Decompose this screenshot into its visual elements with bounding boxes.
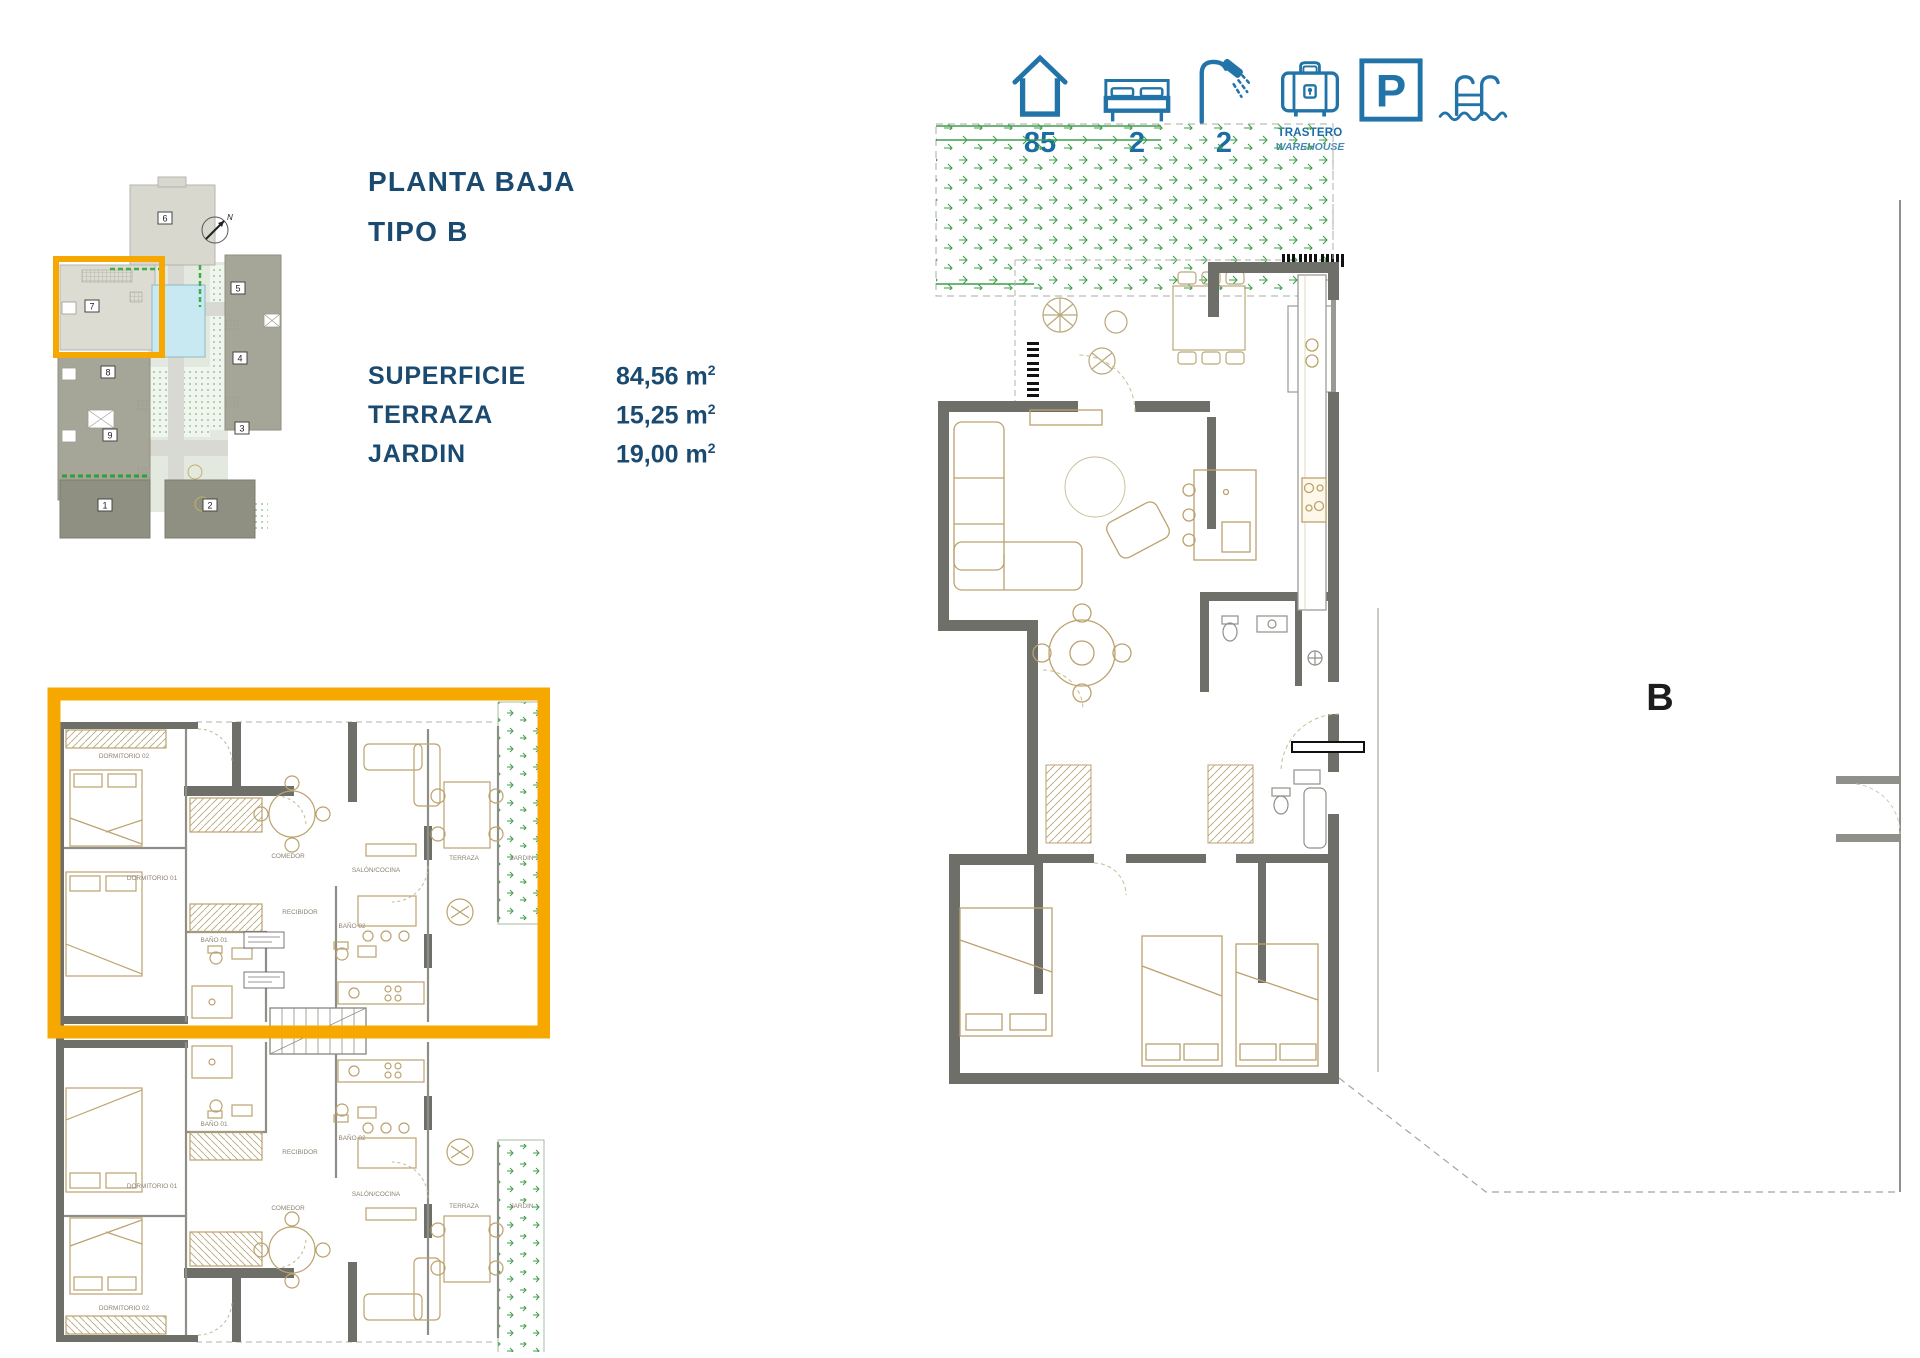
svg-text:1: 1 [102,501,107,511]
page-title: PLANTA BAJA [368,168,576,196]
room-label-dormitorio02: DORMITORIO 02 [99,753,150,760]
room-label-dormitorio01: DORMITORIO 01 [127,875,178,882]
room-label-bano01: BAÑO 01 [201,935,228,944]
spec-value: 19,00 m2 [616,440,716,469]
site-plan: N 6 7 5 4 8 3 9 1 2 [50,172,285,552]
site-building-6 [130,185,215,265]
compass-label: N [227,213,233,222]
room-label-bano02: BAÑO 02 [339,1133,366,1142]
room-label-bano01: BAÑO 01 [201,1119,228,1128]
svg-text:9: 9 [107,431,112,441]
surface-specs: SUPERFICIE 84,56 m2 TERRAZA 15,25 m2 JAR… [368,362,716,479]
bathroom2-fixtures [1272,770,1326,848]
sliding-door [1331,300,1336,392]
parking-letter: P [1376,66,1406,117]
bedroom-area [960,765,1326,1066]
svg-text:4: 4 [237,354,242,364]
spec-row-jardin: JARDIN 19,00 m2 [368,440,716,479]
walls [938,262,1339,1084]
room-label-dormitorio01: DORMITORIO 01 [127,1183,178,1190]
room-label-recibidor: RECIBIDOR [282,909,318,916]
svg-text:6: 6 [162,214,167,224]
room-label-jardin: JARDIN [510,855,533,862]
room-label-salon: SALÓN/COCINA [352,865,401,874]
living-room-furniture [954,410,1172,590]
spec-row-superficie: SUPERFICIE 84,56 m2 [368,362,716,401]
room-label-comedor: COMEDOR [271,853,305,860]
plot-boundary [1339,200,1900,1192]
spec-label: JARDIN [368,440,616,469]
apartment-tipo-b-upper [56,702,544,1028]
svg-text:7: 7 [89,302,94,312]
spec-label: TERRAZA [368,401,616,430]
room-label-terraza: TERRAZA [449,855,480,862]
svg-text:3: 3 [239,424,244,434]
page-subtitle: TIPO B [368,218,576,246]
room-label-salon: SALÓN/COCINA [352,1189,401,1198]
svg-text:2: 2 [207,501,212,511]
unit-letter-label: B [1646,677,1673,719]
entry-tag [244,932,284,988]
ground-floor-plan-left: DORMITORIO 02 DORMITORIO 01 BAÑO 01 COME… [36,686,550,1352]
room-label-bano02: BAÑO 02 [339,921,366,930]
svg-text:8: 8 [105,368,110,378]
brochure-page: { "header": { "title_line1": "PLANTA BAJ… [0,0,1920,1358]
room-label-comedor: COMEDOR [271,1205,305,1212]
structural-beam [1292,742,1364,752]
spec-value: 84,56 m2 [616,362,716,391]
detail-floor-plan-b: B [926,110,1918,1308]
svg-text:5: 5 [235,284,240,294]
spec-label: SUPERFICIE [368,362,616,391]
bathroom1-fixtures [1222,616,1322,665]
spec-row-terraza: TERRAZA 15,25 m2 [368,401,716,440]
room-label-terraza: TERRAZA [449,1203,480,1210]
room-label-recibidor: RECIBIDOR [282,1149,318,1156]
room-label-jardin: JARDIN [510,1203,533,1210]
kitchen-furniture [1183,275,1326,610]
title-block: PLANTA BAJA TIPO B [368,168,576,268]
spec-value: 15,25 m2 [616,401,716,430]
dining-furniture [1033,604,1131,702]
room-label-dormitorio02: DORMITORIO 02 [99,1305,150,1312]
